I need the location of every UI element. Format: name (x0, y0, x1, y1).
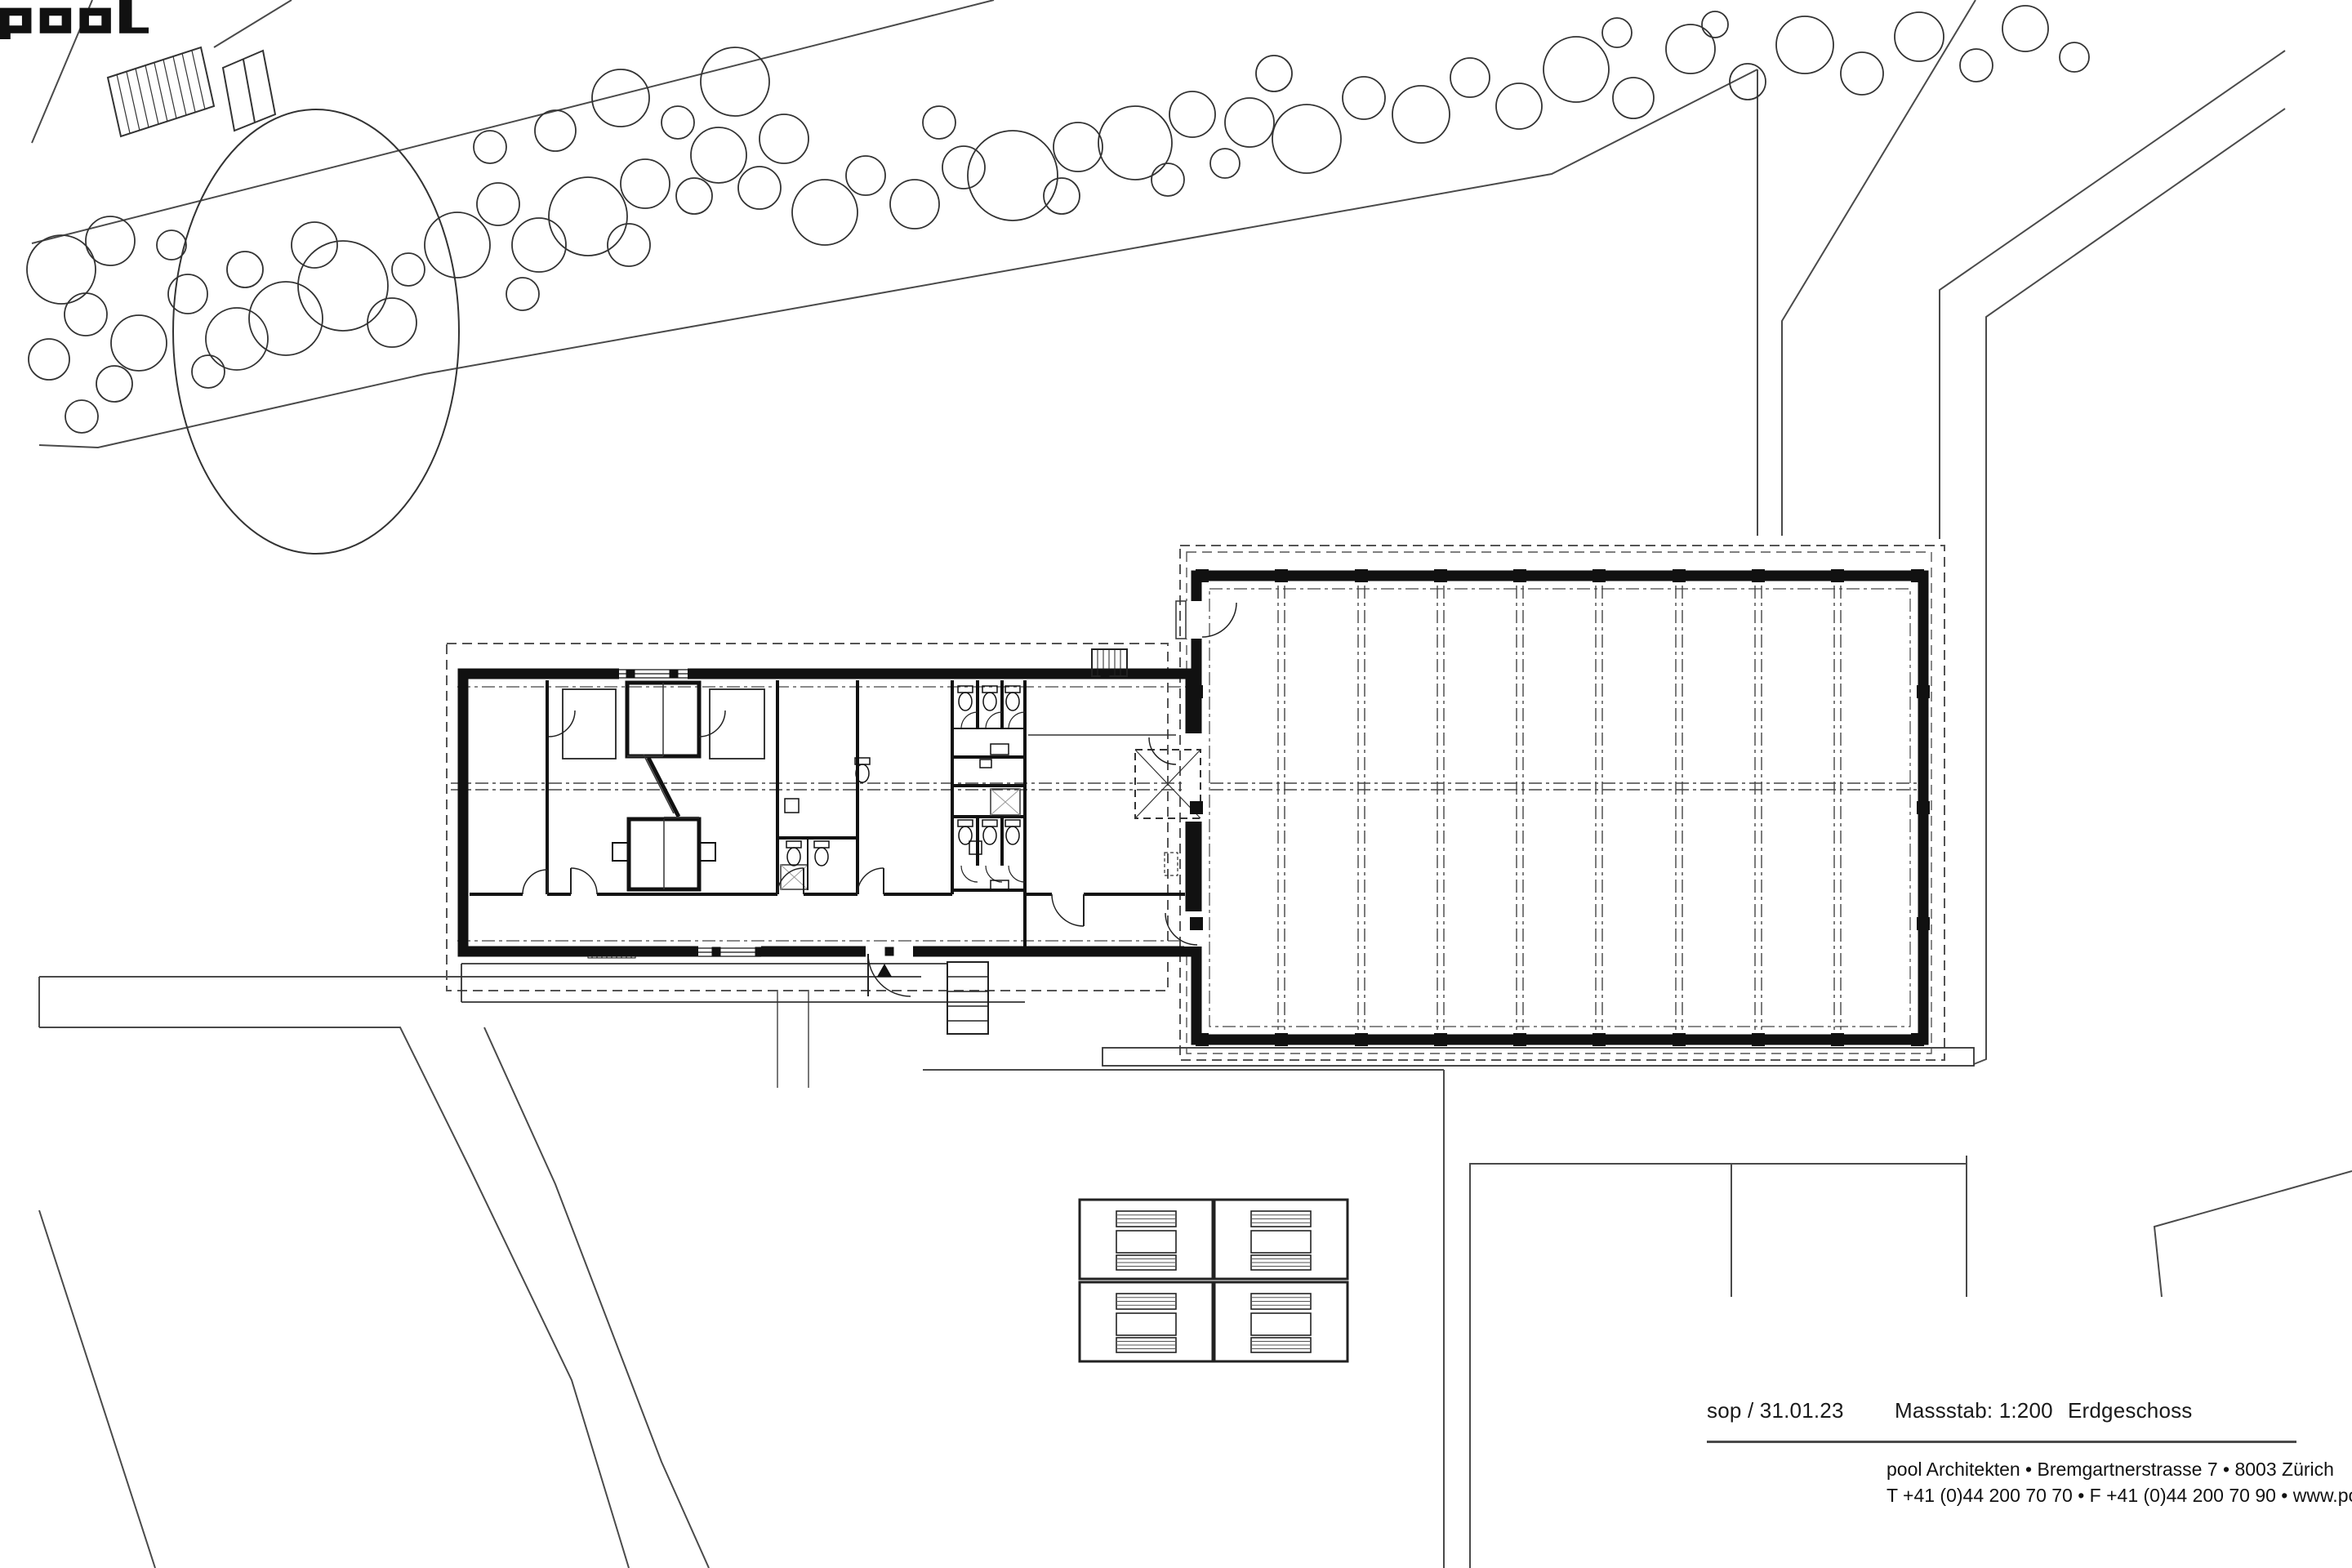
column (670, 947, 679, 956)
hall-column (1673, 1033, 1686, 1046)
tree-circle (29, 339, 69, 380)
door-arc (961, 866, 978, 882)
hall-column (1917, 685, 1930, 698)
parcel-corner-southeast (2154, 1171, 2352, 1297)
tree-circle (1666, 24, 1715, 73)
column (1101, 947, 1110, 956)
toilet-fixture (1005, 820, 1020, 826)
hall-column (1434, 569, 1447, 582)
tree-circle (621, 159, 670, 208)
titleblock-scale: Massstab: 1:200 (1895, 1398, 2053, 1423)
door-arc (523, 870, 547, 894)
column (458, 759, 468, 768)
column (799, 947, 808, 956)
column (458, 893, 468, 903)
stair-clamp-b (699, 843, 715, 861)
tree-circle (477, 183, 519, 225)
hall-column (1752, 1033, 1765, 1046)
duct-box (1165, 853, 1178, 875)
hall-column (1190, 801, 1203, 814)
tree-circle (1602, 18, 1632, 47)
hall-column (1355, 569, 1368, 582)
tree-circle (1702, 11, 1728, 38)
tree-circle (1151, 163, 1184, 196)
column (842, 670, 851, 679)
tree-circle (392, 253, 425, 286)
road-northeast-upper (1940, 51, 2285, 539)
toilet-fixture (959, 693, 972, 710)
toilet-fixture (814, 841, 829, 848)
door-arc (986, 712, 1002, 728)
tree-circle (425, 212, 490, 278)
hall-column (1196, 569, 1209, 582)
stair-hatch (182, 53, 195, 112)
hall-column (1911, 1033, 1924, 1046)
hall-roof-outline-inner (1187, 552, 1931, 1053)
stair-hatch (173, 56, 186, 115)
door-arc (571, 868, 597, 894)
wall-gap-hall-door-up (1185, 601, 1208, 639)
stair-hatch (163, 60, 176, 118)
tree-circle (292, 222, 337, 268)
hall-column (1275, 569, 1288, 582)
toilet-fixture (983, 693, 996, 710)
door-arc (699, 710, 725, 737)
column (712, 670, 721, 679)
tree-circle (535, 110, 576, 151)
tree-circle (1895, 12, 1944, 61)
sink-fixture (991, 744, 1009, 755)
column (929, 947, 938, 956)
tree-circle (2060, 42, 2089, 72)
toilet-fixture (1006, 693, 1019, 710)
hall-column (1355, 1033, 1368, 1046)
door-arc (986, 866, 1002, 882)
column (497, 670, 506, 679)
column (972, 947, 981, 956)
path-edge-right (484, 1027, 709, 1568)
tree-circle (549, 177, 627, 256)
garden-bed (1251, 1313, 1311, 1335)
hall-axis-ring (1209, 589, 1910, 1027)
toilet-fixture (958, 820, 973, 826)
hall-exterior-wall (1196, 576, 1923, 1040)
column (1144, 670, 1153, 679)
entrance-arrow (877, 964, 892, 977)
tree-circle (661, 106, 694, 139)
column (626, 947, 635, 956)
stair-clamp-a (612, 843, 629, 861)
hall-column (1275, 1033, 1288, 1046)
door-arc (857, 868, 884, 894)
road-northeast-lower (1974, 109, 2285, 1064)
tree-circle (968, 131, 1058, 220)
tree-circle (1272, 105, 1341, 173)
column (972, 670, 981, 679)
sink-fixture (980, 759, 991, 768)
big-tree-circle (173, 109, 459, 554)
sink-fixture (785, 799, 799, 813)
path-edge-left (39, 1027, 629, 1568)
tree-circle (206, 308, 268, 370)
hall-column (1911, 569, 1924, 582)
column (885, 947, 894, 956)
tree-circle (367, 298, 416, 347)
column (755, 670, 764, 679)
toilet-fixture (786, 841, 801, 848)
tree-circle (592, 69, 649, 127)
closet-right (710, 689, 764, 759)
door-arc (1149, 737, 1176, 764)
door-arc (1009, 866, 1025, 882)
tree-circle (1543, 37, 1609, 102)
garden-bed (1251, 1231, 1311, 1253)
tree-circle (506, 278, 539, 310)
tree-circle (1776, 16, 1833, 73)
hall-column (1513, 569, 1526, 582)
tree-circle (738, 167, 781, 209)
column (755, 947, 764, 956)
road-edge-north (32, 0, 994, 243)
titleblock-date-author: sop / 31.01.23 (1707, 1398, 1844, 1423)
column (1015, 670, 1024, 679)
tree-circle (192, 355, 225, 388)
toilet-fixture (1006, 826, 1019, 844)
column (670, 670, 679, 679)
tree-circle (942, 146, 985, 189)
titleblock-contact-line: T +41 (0)44 200 70 70 • F +41 (0)44 200 … (1886, 1485, 2352, 1507)
column (583, 670, 592, 679)
hall-column (1752, 569, 1765, 582)
site-plan-svg (0, 0, 2352, 1568)
hall-column (1831, 569, 1844, 582)
hall-column (1190, 917, 1203, 930)
column (497, 947, 506, 956)
tree-circle (1256, 56, 1292, 91)
column (458, 714, 468, 724)
hall-column (1831, 1033, 1844, 1046)
tree-circle (111, 315, 167, 371)
tree-circle (1613, 78, 1654, 118)
titleblock-sheet-name: Erdgeschoss (2068, 1398, 2193, 1423)
column (712, 947, 721, 956)
tree-circle (474, 131, 506, 163)
hall-column (1513, 1033, 1526, 1046)
tree-circle (890, 180, 939, 229)
tree-circle (1841, 52, 1883, 95)
column (1101, 670, 1110, 679)
hall-column (1196, 1033, 1209, 1046)
column (842, 947, 851, 956)
tree-circle (65, 400, 98, 433)
door-arc (961, 712, 978, 728)
column (885, 670, 894, 679)
tree-circle (1496, 83, 1542, 129)
pool-logo (0, 0, 149, 39)
tree-circle (1392, 86, 1450, 143)
titleblock-divider (1707, 1441, 2296, 1443)
stair-hatch (136, 69, 149, 127)
tree-circle (227, 252, 263, 287)
tree-circle (1210, 149, 1240, 178)
tree-circle (1098, 106, 1172, 180)
tree-circle (1225, 98, 1274, 147)
tree-circle (1053, 122, 1102, 171)
tree-circle (846, 156, 885, 195)
column (540, 670, 549, 679)
hall-column (1673, 569, 1686, 582)
column (799, 670, 808, 679)
shed-divider (243, 60, 255, 122)
hall-column (1917, 801, 1930, 814)
tree-circle (701, 47, 769, 116)
plan-sheet: sop / 31.01.23 Massstab: 1:200 Erdgescho… (0, 0, 2352, 1568)
garden-bed (1116, 1231, 1176, 1253)
hall-column (1592, 569, 1606, 582)
door-arc (1009, 712, 1025, 728)
hall-apron (1102, 1048, 1974, 1066)
tree-circle (1450, 58, 1490, 97)
hall-column (1434, 1033, 1447, 1046)
hall-column (1592, 1033, 1606, 1046)
tree-circle (2002, 6, 2048, 51)
stair-hatch (127, 72, 140, 131)
hall-roof-outline (1180, 546, 1944, 1060)
tree-circle (1044, 178, 1080, 214)
door-arc (549, 710, 575, 737)
tree-circle (759, 114, 808, 163)
boundary-northwest-b (214, 0, 292, 47)
tree-circle (923, 106, 955, 139)
column (929, 670, 938, 679)
column (626, 670, 635, 679)
tree-circle (512, 218, 566, 272)
tree-circle (676, 178, 712, 214)
road-northeast-inner (1782, 0, 1976, 536)
titleblock-firm-line: pool Architekten • Bremgartnerstrasse 7 … (1886, 1459, 2334, 1481)
column (583, 947, 592, 956)
stair-flight-thin (644, 755, 674, 813)
hall-column (1917, 917, 1930, 930)
stair-flight (648, 758, 679, 817)
tree-circle (1169, 91, 1215, 137)
parcel-south-outline (1470, 1164, 1967, 1568)
entrance-steps (947, 962, 988, 1034)
tree-circle (1343, 77, 1385, 119)
toilet-fixture (982, 820, 997, 826)
column (1015, 947, 1024, 956)
toilet-fixture (983, 826, 996, 844)
column (1058, 670, 1067, 679)
column (458, 849, 468, 858)
garden-bed (1116, 1313, 1176, 1335)
column (540, 947, 549, 956)
hall-column (1190, 685, 1203, 698)
column (458, 804, 468, 813)
tree-circle (65, 293, 107, 336)
tree-circle (1960, 49, 1993, 82)
west-exterior-wall (463, 674, 1191, 951)
door-arc (1052, 894, 1084, 926)
tree-circle (298, 241, 388, 331)
tree-circle (96, 366, 132, 402)
west-roof-outline (447, 644, 1168, 991)
pool-logo-glyphs (0, 0, 149, 39)
toilet-fixture (815, 848, 828, 866)
road-edge-below-trees (39, 69, 1757, 448)
site-diagonal-southwest (39, 1210, 155, 1568)
sink-fixture (969, 841, 982, 854)
tree-circle (691, 127, 746, 183)
toilet-fixture (787, 848, 800, 866)
tree-circle (792, 180, 857, 245)
column (1058, 947, 1067, 956)
column (1144, 947, 1153, 956)
